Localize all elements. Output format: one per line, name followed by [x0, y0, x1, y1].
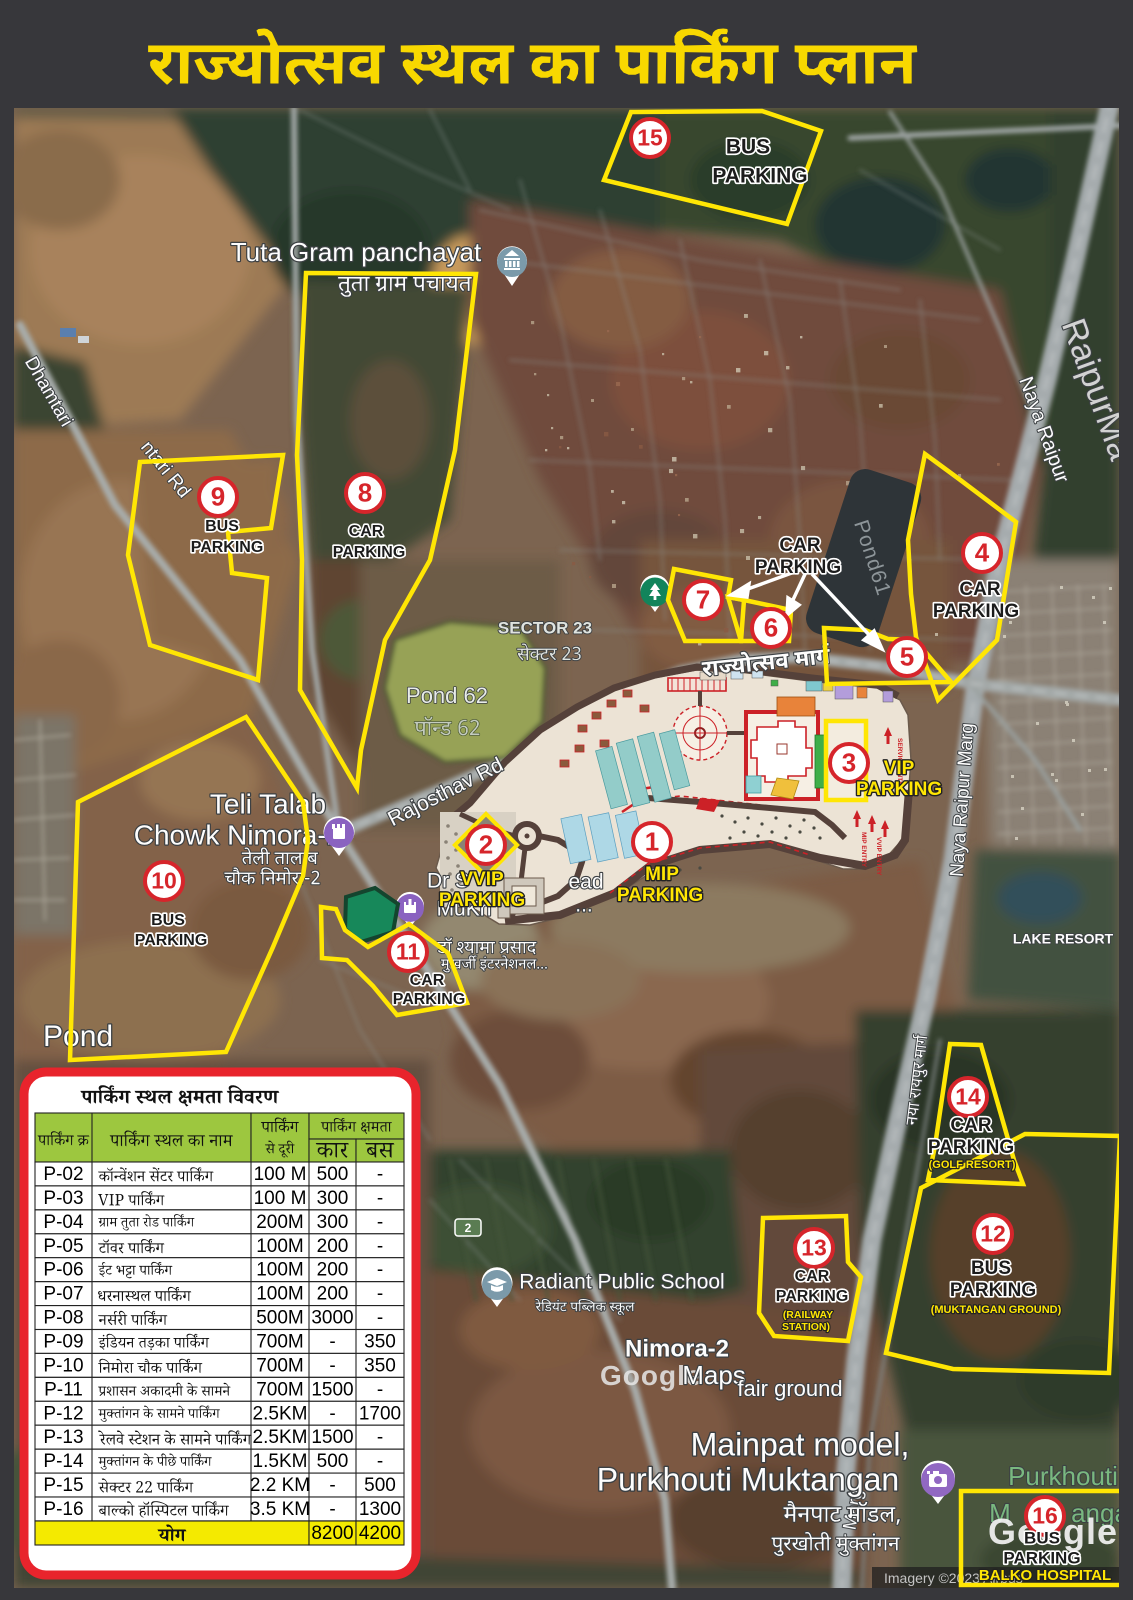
svg-text:CAR: CAR [349, 523, 384, 540]
svg-text:100M: 100M [256, 1284, 304, 1305]
svg-text:P-13: P-13 [43, 1427, 83, 1448]
svg-text:-: - [377, 1212, 383, 1233]
svg-text:CAR: CAR [795, 1268, 830, 1285]
svg-text:SECTOR 23: SECTOR 23 [498, 618, 592, 637]
svg-text:100M: 100M [256, 1260, 304, 1281]
svg-text:P-06: P-06 [43, 1260, 83, 1281]
svg-text:P-03: P-03 [43, 1188, 83, 1209]
svg-text:PARKING: PARKING [755, 557, 841, 578]
svg-text:STATION): STATION) [782, 1321, 830, 1333]
svg-text:fair ground: fair ground [737, 1376, 842, 1401]
svg-text:2.2 KM: 2.2 KM [250, 1475, 310, 1496]
svg-text:(RAILWAY: (RAILWAY [783, 1309, 833, 1321]
svg-text:BUS: BUS [1024, 1528, 1060, 1547]
svg-text:PARKING: PARKING [712, 165, 807, 188]
svg-text:Pond: Pond [43, 1020, 113, 1053]
svg-text:-: - [377, 1427, 383, 1448]
svg-text:16: 16 [1032, 1503, 1058, 1529]
svg-text:4200: 4200 [359, 1523, 401, 1544]
svg-text:14: 14 [955, 1084, 981, 1110]
svg-text:PARKING: PARKING [776, 1288, 849, 1305]
svg-text:PARKING: PARKING [1003, 1548, 1080, 1567]
svg-text:P-02: P-02 [43, 1164, 83, 1185]
svg-text:500: 500 [317, 1164, 349, 1185]
svg-text:PARKING: PARKING [933, 601, 1019, 622]
svg-text:P-11: P-11 [44, 1379, 83, 1400]
svg-text:350: 350 [364, 1355, 396, 1376]
svg-text:-: - [377, 1260, 383, 1281]
svg-text:7: 7 [696, 584, 710, 614]
svg-text:500: 500 [317, 1451, 349, 1472]
svg-text:10: 10 [151, 868, 177, 894]
svg-text:-: - [329, 1355, 335, 1376]
svg-text:CAR: CAR [959, 579, 1000, 600]
svg-text:200: 200 [317, 1236, 349, 1257]
svg-text:-: - [377, 1188, 383, 1209]
svg-text:P-14: P-14 [43, 1451, 84, 1472]
svg-text:1300: 1300 [359, 1499, 401, 1520]
svg-text:Nimora-2: Nimora-2 [625, 1335, 729, 1362]
svg-text:PARKING: PARKING [191, 539, 264, 556]
svg-text:PARKING: PARKING [928, 1137, 1014, 1158]
svg-text:300: 300 [317, 1188, 349, 1209]
svg-text:BUS: BUS [726, 136, 770, 159]
svg-text:Purkhouti: Purkhouti [1008, 1461, 1118, 1491]
svg-text:15: 15 [637, 125, 663, 151]
svg-text:350: 350 [364, 1332, 396, 1353]
svg-text:Tuta Gram panchayat: Tuta Gram panchayat [231, 237, 482, 267]
svg-text:CAR: CAR [950, 1115, 991, 1136]
svg-text:P-09: P-09 [43, 1332, 83, 1353]
svg-text:2.5KM: 2.5KM [253, 1403, 308, 1424]
svg-text:PARKING: PARKING [439, 890, 525, 911]
svg-text:2.5KM: 2.5KM [253, 1427, 308, 1448]
svg-text:100 M: 100 M [254, 1164, 307, 1185]
svg-text:BUS: BUS [151, 912, 185, 929]
svg-text:PARKING: PARKING [950, 1280, 1036, 1301]
svg-text:11: 11 [396, 939, 421, 965]
svg-text:PARKING: PARKING [393, 991, 466, 1008]
svg-text:(GOLF RESORT): (GOLF RESORT) [929, 1159, 1016, 1171]
svg-text:1700: 1700 [359, 1403, 401, 1424]
svg-text:Mainpat model,: Mainpat model, [691, 1426, 910, 1462]
svg-text:300: 300 [317, 1212, 349, 1233]
svg-text:VVIP ENTRY: VVIP ENTRY [875, 837, 882, 876]
svg-text:Purkhouti Muktangan: Purkhouti Muktangan [597, 1461, 899, 1497]
svg-text:5: 5 [900, 641, 914, 671]
svg-text:-: - [377, 1308, 383, 1329]
svg-text:100M: 100M [256, 1236, 304, 1257]
svg-text:Radiant Public School: Radiant Public School [519, 1271, 724, 1294]
svg-text:P-12: P-12 [43, 1403, 83, 1424]
svg-text:-: - [329, 1475, 335, 1496]
svg-text:8200: 8200 [311, 1523, 353, 1544]
svg-text:PARKING: PARKING [856, 779, 942, 800]
svg-text:500: 500 [364, 1475, 396, 1496]
svg-text:2: 2 [479, 829, 493, 859]
svg-text:12: 12 [980, 1221, 1006, 1247]
svg-text:-: - [329, 1403, 335, 1424]
svg-text:VVIP: VVIP [460, 869, 504, 890]
svg-text:200: 200 [317, 1260, 349, 1281]
svg-text:P-04: P-04 [43, 1212, 84, 1233]
svg-text:MIP ENTRY: MIP ENTRY [860, 832, 867, 868]
svg-text:1.5KM: 1.5KM [253, 1451, 308, 1472]
svg-text:1: 1 [645, 826, 659, 856]
svg-text:700M: 700M [256, 1379, 304, 1400]
svg-text:-: - [377, 1451, 383, 1472]
svg-text:BUS: BUS [971, 1258, 1011, 1279]
svg-text:Teli Talab: Teli Talab [210, 788, 326, 819]
svg-text:LAKE RESORT: LAKE RESORT [1013, 931, 1114, 947]
svg-text:CAR: CAR [779, 535, 820, 556]
svg-text:VIP: VIP [884, 758, 915, 779]
svg-text:P-07: P-07 [43, 1284, 83, 1305]
svg-text:Maps: Maps [682, 1360, 746, 1390]
svg-text:-: - [377, 1284, 383, 1305]
svg-text:BUS: BUS [205, 518, 239, 535]
svg-text:-: - [377, 1236, 383, 1257]
svg-text:100 M: 100 M [254, 1188, 307, 1209]
svg-text:2: 2 [465, 1221, 472, 1235]
svg-text:Pond 62: Pond 62 [406, 683, 488, 708]
svg-text:BALKO HOSPITAL: BALKO HOSPITAL [979, 1567, 1111, 1584]
svg-text:3000: 3000 [311, 1308, 353, 1329]
svg-text:700M: 700M [256, 1332, 304, 1353]
svg-text:...: ... [575, 894, 593, 917]
svg-text:-: - [377, 1379, 383, 1400]
svg-text:P-16: P-16 [43, 1499, 83, 1520]
svg-text:(MUKTANGAN GROUND): (MUKTANGAN GROUND) [931, 1304, 1062, 1316]
svg-text:4: 4 [975, 537, 990, 567]
svg-text:500M: 500M [256, 1308, 304, 1329]
svg-text:CAR: CAR [410, 972, 445, 989]
svg-text:MIP: MIP [645, 864, 679, 885]
svg-text:P-05: P-05 [43, 1236, 83, 1257]
svg-text:P-10: P-10 [43, 1355, 83, 1376]
svg-text:P-15: P-15 [43, 1475, 83, 1496]
svg-text:PARKING: PARKING [135, 932, 208, 949]
svg-text:6: 6 [764, 612, 778, 642]
svg-text:ead: ead [568, 871, 603, 894]
svg-text:Chowk Nimora-2: Chowk Nimora-2 [134, 819, 343, 850]
svg-text:-: - [377, 1164, 383, 1185]
svg-text:200: 200 [317, 1284, 349, 1305]
svg-text:PARKING: PARKING [333, 544, 406, 561]
svg-text:3.5 KM: 3.5 KM [250, 1499, 310, 1520]
svg-text:1500: 1500 [311, 1427, 353, 1448]
svg-text:9: 9 [211, 481, 225, 511]
svg-text:3: 3 [842, 747, 856, 777]
svg-text:1500: 1500 [311, 1379, 353, 1400]
svg-text:200M: 200M [256, 1212, 304, 1233]
svg-text:13: 13 [801, 1235, 827, 1261]
svg-text:P-08: P-08 [43, 1308, 83, 1329]
svg-text:-: - [329, 1499, 335, 1520]
svg-text:8: 8 [358, 477, 372, 507]
svg-text:-: - [329, 1332, 335, 1353]
svg-text:700M: 700M [256, 1355, 304, 1376]
svg-text:PARKING: PARKING [617, 885, 703, 906]
